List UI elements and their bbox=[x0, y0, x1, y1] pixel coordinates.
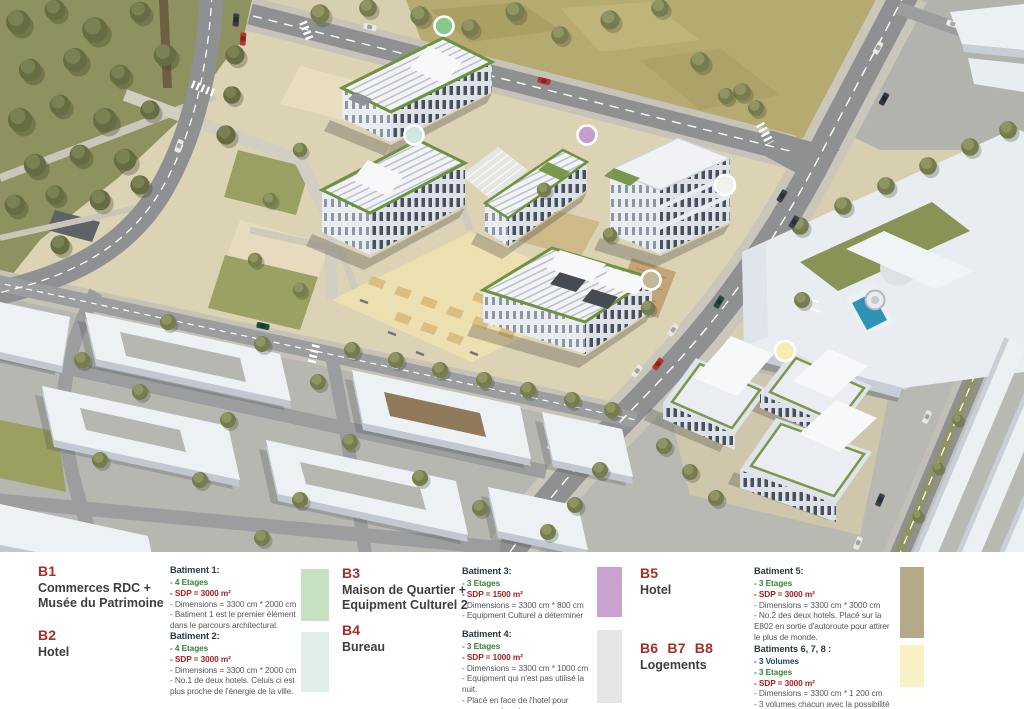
legend-detail-b2: Batiment 2: - 4 Etages - SDP = 3000 m² -… bbox=[170, 630, 300, 697]
legend-detail-b4: Batiment 4: - 3 Etages - SDP = 1000 m² -… bbox=[462, 628, 594, 709]
building-id: B4 bbox=[342, 622, 474, 638]
masterplan-page: B1 Commerces RDC +Musée du Patrimoine B2… bbox=[0, 0, 1024, 709]
legend-label-b5: B5 Hotel bbox=[640, 565, 772, 598]
legend-detail-b6-b7-b8: Batiments 6, 7, 8 : - 3 Volumes - 3 Etag… bbox=[754, 643, 896, 709]
building-id: B3 bbox=[342, 565, 474, 581]
building-title: Bureau bbox=[342, 640, 474, 655]
legend-detail-b3: Batiment 3: - 3 Etages - SDP = 1500 m² -… bbox=[462, 565, 594, 621]
building-id: B6 B7 B8 bbox=[640, 640, 772, 656]
site-plan-rendering bbox=[0, 0, 1024, 555]
legend-label-b4: B4 Bureau bbox=[342, 622, 474, 655]
building-id: B5 bbox=[640, 565, 772, 581]
legend-label-b6-b7-b8: B6 B7 B8 Logements bbox=[640, 640, 772, 673]
swatch-b6-b7-b8 bbox=[900, 645, 924, 687]
building-title: Commerces RDC + bbox=[38, 581, 151, 595]
building-title: Logements bbox=[640, 658, 772, 673]
swatch-b5 bbox=[900, 567, 924, 638]
legend-detail-b1: Batiment 1: - 4 Etages - SDP = 3000 m² -… bbox=[170, 564, 300, 631]
building-title: Hotel bbox=[640, 583, 772, 598]
legend-label-b2: B2 Hotel bbox=[38, 627, 170, 660]
legend-detail-b5: Batiment 5: - 3 Etages - SDP = 3000 m² -… bbox=[754, 565, 896, 643]
marker-b3 bbox=[578, 126, 597, 145]
swatch-b4 bbox=[597, 630, 622, 703]
marker-b1 bbox=[435, 17, 454, 36]
marker-b2 bbox=[405, 126, 424, 145]
building-id: B2 bbox=[38, 627, 170, 643]
building-title: Hotel bbox=[38, 645, 170, 660]
swatch-b3 bbox=[597, 567, 622, 617]
marker-b6-b7-b8 bbox=[775, 341, 795, 361]
building-id: B1 bbox=[38, 563, 170, 579]
building-title: Maison de Quartier + bbox=[342, 583, 466, 597]
legend-label-b1: B1 Commerces RDC +Musée du Patrimoine bbox=[38, 563, 170, 612]
legend-label-b3: B3 Maison de Quartier +Equipment Culture… bbox=[342, 565, 474, 614]
swatch-b1 bbox=[301, 569, 329, 621]
legend: B1 Commerces RDC +Musée du Patrimoine B2… bbox=[0, 552, 1024, 709]
marker-b5 bbox=[642, 271, 661, 290]
swatch-b2 bbox=[301, 632, 329, 692]
marker-b4 bbox=[715, 175, 735, 195]
